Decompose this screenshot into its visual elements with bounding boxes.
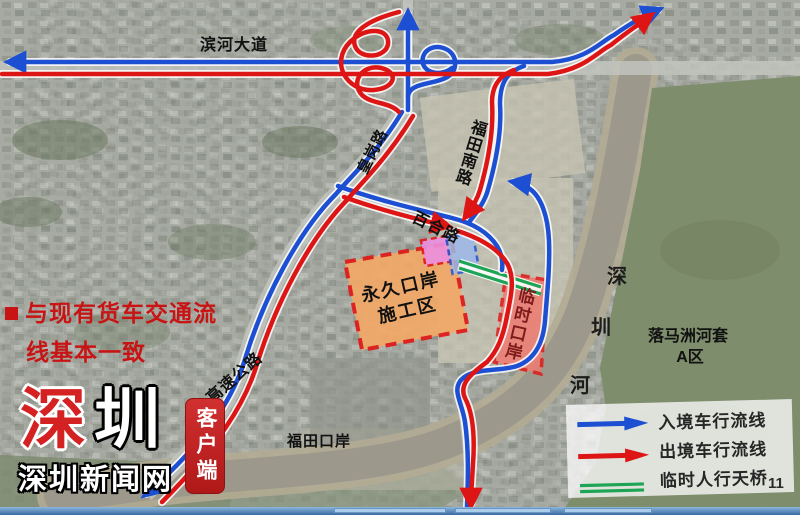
legend-row-footbridge: 临时人行天桥 — [575, 461, 794, 496]
legend-label-footbridge: 临时人行天桥 — [659, 464, 768, 492]
logo-char-shen: 深 — [20, 382, 86, 456]
label-wetland-line2: A区 — [676, 348, 704, 366]
label-futian-port: 福田口岸 — [286, 432, 351, 450]
client-app-badge: 客户端 — [185, 398, 225, 494]
annotation-line2: 线基本一致 — [26, 341, 217, 364]
label-river-char3: 河 — [570, 374, 590, 397]
annotation-line1: 与现有货车交通流 — [25, 302, 217, 325]
label-river-char1: 深 — [607, 265, 627, 288]
map-legend: 入境车行流线 出境车行流线 临时人行天桥 — [566, 399, 794, 498]
taskbar-strip — [0, 507, 800, 515]
blue-arrow-icon — [574, 413, 658, 415]
legend-label-outbound: 出境车行流线 — [659, 435, 768, 463]
legend-label-inbound: 入境车行流线 — [658, 406, 767, 434]
annotation-text-block: 与现有货车交通流 线基本一致 — [5, 302, 217, 364]
logo-char-zhen: 圳 — [94, 382, 160, 456]
slide-traffic-flow-map: 滨河大道 皇岗路 百合路 高速公路 福田口岸 永久口岸 施工区 深 圳 河 落马… — [0, 0, 800, 515]
shenzhen-news-logo: 深圳 — [20, 386, 160, 452]
taskbar-button[interactable] — [334, 508, 446, 513]
label-wetland-line1: 落马洲河套 — [648, 326, 729, 345]
bullet-square-icon — [5, 307, 18, 320]
green-double-line-icon — [576, 477, 660, 479]
client-app-badge-label: 客户端 — [190, 407, 220, 485]
logo-site-name: 深圳新闻网 — [18, 456, 173, 498]
label-river-char2: 圳 — [591, 316, 611, 339]
label-binhe-avenue: 滨河大道 — [200, 35, 268, 54]
taskbar-button[interactable] — [564, 508, 652, 513]
red-arrow-icon — [575, 445, 659, 447]
page-number: 11 — [768, 475, 784, 492]
taskbar-button[interactable] — [455, 508, 551, 513]
